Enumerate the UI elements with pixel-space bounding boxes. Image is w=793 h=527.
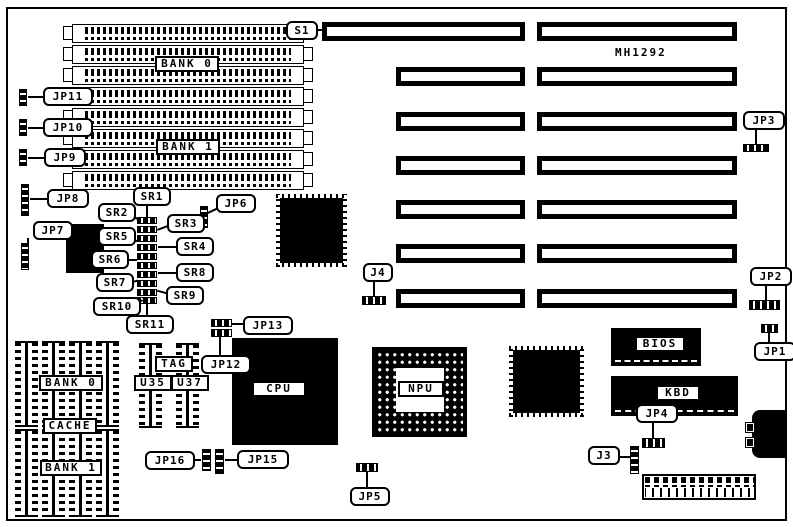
sr-jumper	[137, 235, 157, 242]
callout-jp5: JP5	[350, 487, 390, 506]
jumper-jp15	[215, 449, 224, 474]
callout-sr7: SR7	[96, 273, 134, 292]
cache-label: CACHE	[43, 418, 97, 434]
callout-j4: J4	[363, 263, 393, 282]
simm-socket	[72, 87, 304, 106]
isa-slot	[396, 244, 525, 263]
motherboard-diagram: MH1292 BANK 0 BANK 1 S1 JP11 JP10 JP9 JP…	[0, 0, 793, 527]
callout-jp10: JP10	[43, 118, 93, 137]
jumper-jp5	[356, 463, 378, 472]
callout-j3: J3	[588, 446, 620, 465]
jumper-jp3	[743, 144, 769, 152]
u37-label: U37	[171, 375, 209, 391]
isa-slot	[322, 22, 525, 41]
callout-jp12: JP12	[201, 355, 251, 374]
callout-sr6: SR6	[91, 250, 129, 269]
jumper-jp2	[749, 300, 780, 310]
callout-sr4: SR4	[176, 237, 214, 256]
isa-slot	[537, 244, 737, 263]
jumper-jp13	[211, 319, 232, 327]
sr-jumper	[137, 289, 157, 296]
cache-bank1-label: BANK 1	[40, 460, 102, 476]
callout-sr10: SR10	[93, 297, 141, 316]
callout-jp16: JP16	[145, 451, 195, 470]
callout-jp6: JP6	[216, 194, 256, 213]
sr-jumper	[137, 271, 157, 278]
jumper-jp1	[761, 324, 778, 333]
power-connector	[642, 474, 756, 500]
simm-bank1-label: BANK 1	[156, 139, 220, 155]
jumper-j4	[362, 296, 386, 305]
callout-sr9: SR9	[166, 286, 204, 305]
sr-jumper	[137, 262, 157, 269]
jumper-jp7	[21, 243, 29, 270]
sr-jumper	[137, 253, 157, 260]
callout-jp15: JP15	[237, 450, 289, 469]
callout-jp8: JP8	[47, 189, 89, 208]
isa-slot	[537, 67, 737, 86]
cache-bank0-label: BANK 0	[39, 375, 103, 391]
jumper-jp8	[21, 184, 29, 216]
callout-jp2: JP2	[750, 267, 792, 286]
tag-label: TAG	[155, 356, 193, 372]
isa-slot	[396, 112, 525, 131]
callout-jp1: JP1	[754, 342, 793, 361]
isa-slot	[537, 22, 737, 41]
callout-sr11: SR11	[126, 315, 174, 334]
callout-sr5: SR5	[98, 227, 136, 246]
cpu-label: CPU	[253, 382, 305, 396]
cache-chip	[15, 429, 38, 517]
jumper-jp10	[19, 119, 27, 136]
chipset-qfp	[513, 350, 580, 413]
u35-label: U35	[134, 375, 172, 391]
jumper-jp4	[642, 438, 665, 448]
isa-slot	[537, 200, 737, 219]
isa-slot	[537, 289, 737, 308]
npu-label: NPU	[398, 381, 444, 397]
callout-jp11: JP11	[43, 87, 93, 106]
simm-socket	[72, 171, 304, 190]
sr-jumper	[137, 244, 157, 251]
callout-jp7: JP7	[33, 221, 73, 240]
callout-sr2: SR2	[98, 203, 136, 222]
cache-chip	[15, 341, 38, 427]
kbd-label: KBD	[657, 386, 699, 400]
simm-socket	[72, 24, 304, 43]
isa-slot	[396, 67, 525, 86]
callout-jp4: JP4	[636, 404, 678, 423]
isa-slot	[396, 200, 525, 219]
isa-slot	[537, 112, 737, 131]
callout-jp9: JP9	[44, 148, 86, 167]
bios-label: BIOS	[636, 337, 684, 351]
isa-slot	[396, 156, 525, 175]
callout-sr8: SR8	[176, 263, 214, 282]
simm-socket	[72, 108, 304, 127]
callout-jp13: JP13	[243, 316, 293, 335]
sr-jumper	[137, 280, 157, 287]
jumper-jp16	[202, 449, 211, 471]
jumper-j3	[630, 446, 639, 474]
callout-s1: S1	[286, 21, 318, 40]
sr-jumper	[137, 226, 157, 233]
chipset-qfp	[280, 198, 343, 263]
keyboard-connector	[752, 410, 786, 458]
board-model-label: MH1292	[615, 46, 667, 59]
sr-jumper	[137, 217, 157, 224]
jumper-jp9	[19, 149, 27, 166]
jumper-jp12	[211, 329, 232, 337]
callout-jp3: JP3	[743, 111, 785, 130]
isa-slot	[537, 156, 737, 175]
callout-sr1: SR1	[133, 187, 171, 206]
jumper-jp11	[19, 89, 27, 106]
isa-slot	[396, 289, 525, 308]
simm-bank0-label: BANK 0	[155, 56, 219, 72]
callout-sr3: SR3	[167, 214, 205, 233]
